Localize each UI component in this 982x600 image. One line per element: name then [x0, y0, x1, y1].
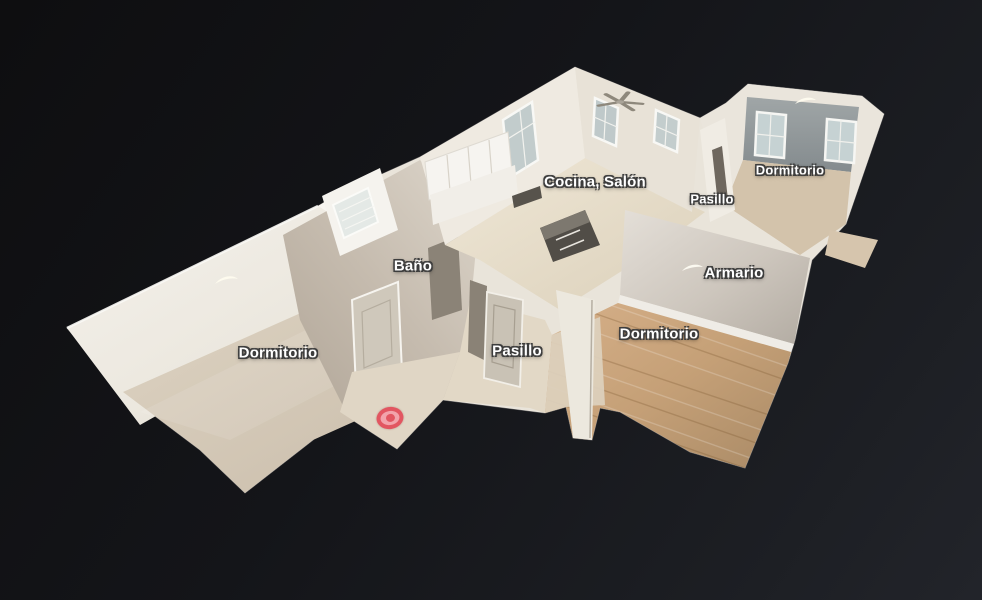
dollhouse-model	[0, 0, 982, 600]
dollhouse-viewer[interactable]: Cocina, Salón Dormitorio Pasillo Baño Ar…	[0, 0, 982, 600]
scan-point-marker[interactable]	[375, 405, 405, 431]
